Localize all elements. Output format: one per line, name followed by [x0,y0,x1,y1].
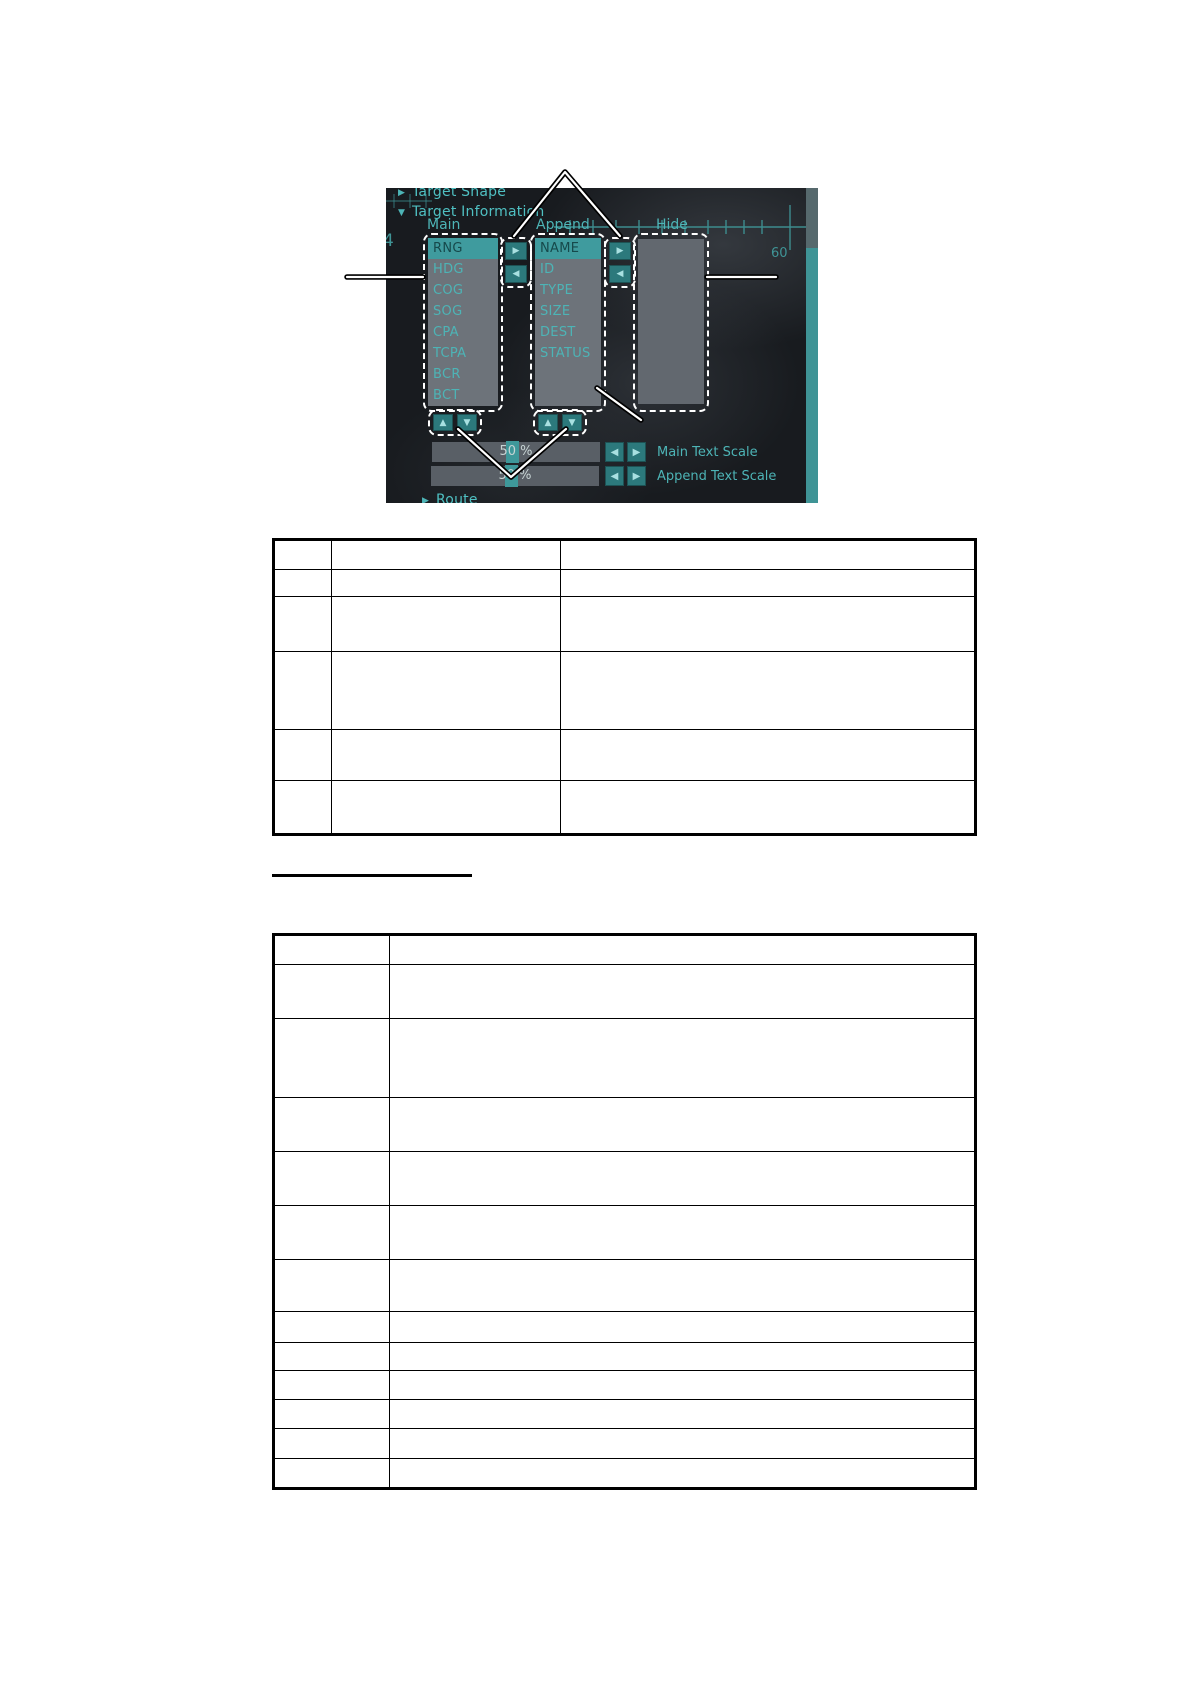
table-cell [275,597,331,651]
increase-button[interactable]: ▶ [627,442,646,462]
list-item-cpa[interactable]: CPA [428,322,498,343]
table-cell [390,1429,974,1458]
table-cell [561,541,974,569]
list-item-name[interactable]: NAME [535,238,601,259]
list-item-rng[interactable]: RNG [428,238,498,259]
table-cell [390,1260,974,1311]
move-up-button[interactable]: ▲ [433,414,453,431]
table-cell [275,1371,389,1399]
list-item-cog[interactable]: COG [428,280,498,301]
list-item-type[interactable]: TYPE [535,280,601,301]
increase-button[interactable]: ▶ [627,466,646,486]
slider-label: Main Text Scale [657,445,758,460]
move-down-button[interactable]: ▼ [457,414,477,431]
table-cell [390,1371,974,1399]
table-cell [390,1098,974,1151]
table-cell [332,730,560,780]
main-info-list[interactable]: RNGHDGCOGSOGCPATCPABCRBCT [428,238,498,406]
table-cell [275,570,331,596]
table-cell [332,541,560,569]
append-info-list[interactable]: NAMEIDTYPESIZEDESTSTATUS [535,238,601,406]
slider-value: 50 % [431,466,599,486]
table-cell [275,541,331,569]
table-cell [275,652,331,729]
table-cell [275,730,331,780]
section-label: Route [436,492,478,503]
list-item-tcpa[interactable]: TCPA [428,343,498,364]
table-cell [390,1400,974,1428]
table-cell [561,652,974,729]
table-cell [275,1459,389,1487]
table-cell [275,1400,389,1428]
table-cell [390,1019,974,1097]
section-route[interactable]: ▶Route [422,492,478,503]
table-cell [390,1343,974,1370]
table-cell [390,936,974,964]
list-item-dest[interactable]: DEST [535,322,601,343]
table-cell [275,781,331,833]
list-item-sog[interactable]: SOG [428,301,498,322]
section-label: Target Shape [412,188,506,200]
slider-label: Append Text Scale [657,469,776,484]
collapsed-arrow-icon: ▶ [398,188,412,198]
list-item-size[interactable]: SIZE [535,301,601,322]
section-target-shape[interactable]: ▶Target Shape [398,188,506,200]
table-cell [275,936,389,964]
table-cell [390,1459,974,1487]
list-item-id[interactable]: ID [535,259,601,280]
decrease-button[interactable]: ◀ [605,466,624,486]
table-cell [390,1206,974,1259]
radar-range-number-right: 60 [771,246,788,261]
section-heading-underline [272,874,472,877]
table-cell [332,652,560,729]
append-text-scale-slider[interactable]: 50 % [431,466,599,486]
table-cell [561,730,974,780]
table-cell [275,1260,389,1311]
collapsed-arrow-icon: ▶ [422,496,436,503]
list-item-bct[interactable]: BCT [428,385,498,406]
move-up-button[interactable]: ▲ [538,414,558,431]
scrollbar[interactable] [806,188,818,503]
table-cell [275,965,389,1018]
hide-info-list[interactable] [638,239,704,404]
table-cell [332,597,560,651]
list-item-hdg[interactable]: HDG [428,259,498,280]
table-cell [332,570,560,596]
table-cell [390,1152,974,1205]
section-target-information[interactable]: ▼Target Information [398,204,544,220]
table-cell [561,597,974,651]
move-right-button[interactable]: ▶ [609,242,631,260]
table-cell [275,1098,389,1151]
column-header-main: Main [427,217,460,233]
decrease-button[interactable]: ◀ [605,442,624,462]
move-down-button[interactable]: ▼ [562,414,582,431]
table-cell [275,1206,389,1259]
move-left-button[interactable]: ◀ [505,265,527,283]
table-cell [390,965,974,1018]
move-left-button[interactable]: ◀ [609,265,631,283]
table-cell [275,1152,389,1205]
table-cell [275,1343,389,1370]
column-header-append: Append [536,217,590,233]
move-right-button[interactable]: ▶ [505,242,527,260]
slider-value: 50 % [432,442,600,462]
radar-range-number-left: 4 [386,231,394,251]
main-text-scale-slider[interactable]: 50 % [432,442,600,462]
list-item-status[interactable]: STATUS [535,343,601,364]
scrollbar-thumb[interactable] [806,248,818,503]
table-cell [332,781,560,833]
description-table-2 [272,933,977,1490]
table-cell [275,1019,389,1097]
table-cell [275,1312,389,1342]
column-header-hide: Hide [656,217,688,233]
table-cell [561,570,974,596]
table-cell [390,1312,974,1342]
expanded-arrow-icon: ▼ [398,208,412,218]
document-page: 4 60 ▶Target Shape ▼Target Information M… [0,0,1190,1684]
description-table-1 [272,538,977,836]
table-cell [561,781,974,833]
target-settings-screenshot: 4 60 ▶Target Shape ▼Target Information M… [386,188,818,503]
list-item-bcr[interactable]: BCR [428,364,498,385]
table-cell [275,1429,389,1458]
